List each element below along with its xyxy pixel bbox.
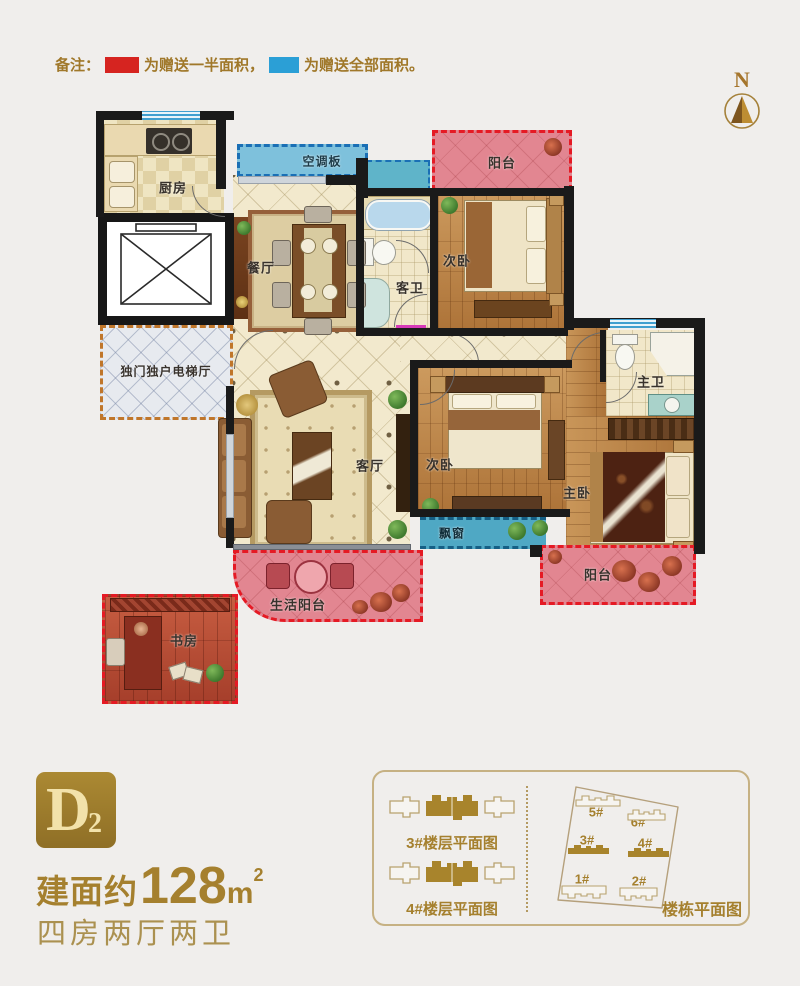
bed-headboard [444,376,546,393]
room-label-life-balcony: 生活阳台 [270,595,326,614]
site-plan-label: 楼栋平面图 [662,896,742,920]
unit-area-prefix: 建面约 [36,865,138,913]
dining-plate [322,284,338,300]
room-label-guest-bath: 客卫 [396,278,424,297]
legend-blue-swatch [269,57,299,73]
legend: 备注： 为赠送一半面积， 为赠送全部面积。 [55,54,424,75]
room-label-bedroom-top: 次卧 [443,251,471,270]
wall [564,186,574,330]
compass-rose-icon [722,91,762,131]
panel-divider [526,786,528,912]
room-label-kitchen: 厨房 [159,178,187,197]
bed-footboard [590,452,604,542]
wall [600,330,606,382]
door-threshold [396,325,426,328]
room-label-master-bath: 主卫 [637,372,665,391]
unit-area-sup: 2 [253,865,263,886]
unit-code-letter: D [46,774,91,846]
plant [532,520,548,536]
corridor-floor [400,334,572,362]
unit-area-line: 建面约 128 m 2 [36,856,263,916]
dining-plate [300,238,316,254]
plant [206,664,224,682]
room-label-ac-panel: 空调板 [302,153,341,170]
flowers [548,550,562,564]
wall [694,540,705,554]
wall [366,188,572,196]
elevator-x-brace [107,222,225,316]
bathtub [366,200,432,230]
sink-basin [109,161,135,183]
flowers [662,556,682,576]
compass-n-label: N [718,70,766,90]
plant [237,221,251,235]
master-bath-window [610,319,656,328]
pillow [666,498,690,538]
pillow [452,394,492,409]
balcony-table [294,560,328,594]
pillow [666,456,690,496]
flowers [612,560,636,582]
dresser [548,420,565,480]
stove-burner [152,133,170,151]
flowers [352,600,368,614]
room-label-dining: 餐厅 [247,258,275,277]
pillow [526,248,546,284]
wall [410,368,418,517]
room-label-study: 书房 [170,631,198,650]
stove-burner [172,133,190,151]
room-label-master-bedroom: 主卧 [563,483,591,502]
plant [388,390,407,409]
desk-lamp [134,622,148,636]
vanity-sink [664,397,680,413]
bed-duvet [603,452,665,542]
living-left-window [226,434,234,518]
wall [356,192,364,332]
balcony-chair [330,563,354,589]
sliding-door [233,544,411,550]
dining-chair [272,282,291,308]
wall [430,192,438,332]
room-label-balcony-top: 阳台 [488,153,516,172]
unit-area-value: 128 [140,856,227,916]
bed-headboard [546,198,562,294]
wall [694,318,705,552]
unit-rooms-desc: 四房两厅两卫 [37,910,235,952]
plant [388,520,407,539]
wall [356,328,568,336]
room-label-elevator-hall: 独门独户电梯厅 [120,363,211,380]
wall [530,545,542,557]
legend-red-swatch [105,57,139,73]
floorplan-page: { "legend": { "prefix": "备注：", "red_labe… [0,0,800,986]
room-label-living: 客厅 [356,456,384,475]
flowers [392,584,410,602]
bed-blanket [466,202,492,288]
dining-top-window [238,176,326,184]
tv-cabinet [396,414,410,512]
coffee-table [292,432,332,500]
dining-plate [322,238,338,254]
floor4-plate-diagram [386,852,518,894]
dining-chair [304,318,332,335]
wall [410,360,572,368]
legend-red-label: 为赠送一半面积， [144,54,264,75]
toilet-bowl [372,240,396,265]
hall-lamp [236,296,248,308]
bed-blanket [448,410,540,430]
room-label-bedroom-mid: 次卧 [426,455,454,474]
legend-prefix: 备注： [55,54,100,75]
wall [216,111,226,189]
kitchen-window [142,111,200,120]
nightstand [673,440,694,453]
pillow [496,394,536,409]
armchair [266,500,312,544]
floor3-plate-diagram [386,786,518,828]
nightstand [549,293,564,306]
unit-code-sub: 2 [88,808,102,840]
pillow [526,206,546,242]
wall [226,386,234,434]
wardrobe [608,418,696,440]
side-table [236,394,258,416]
compass: N [718,70,766,136]
nightstand [544,376,560,393]
room-label-balcony-bottom: 阳台 [584,565,612,584]
unit-area-unit: m [227,877,254,911]
sink-basin [109,186,135,208]
balcony-chair [266,563,290,589]
study-lattice-screen [110,598,230,612]
elevator-shaft [98,213,234,325]
wall [410,509,570,517]
bed-bench [474,300,552,318]
plant [508,522,526,540]
plant [441,197,458,214]
toilet-bowl [615,344,635,370]
flowers [370,592,392,612]
dining-chair [304,206,332,223]
shower [362,278,390,328]
desk-chair [106,638,125,666]
wall [96,111,104,217]
room-label-bay-window: 飘窗 [439,525,465,542]
legend-blue-label: 为赠送全部面积。 [304,54,424,75]
flower-pot [544,138,562,156]
floor-plan: 厨房 空调板 阳台 次卧 客卫 餐厅 独门独户电梯厅 客厅 次卧 主卫 主卧 飘… [0,0,800,760]
dining-plate [300,284,316,300]
flowers [638,572,660,592]
unit-code-badge: D 2 [36,772,116,848]
